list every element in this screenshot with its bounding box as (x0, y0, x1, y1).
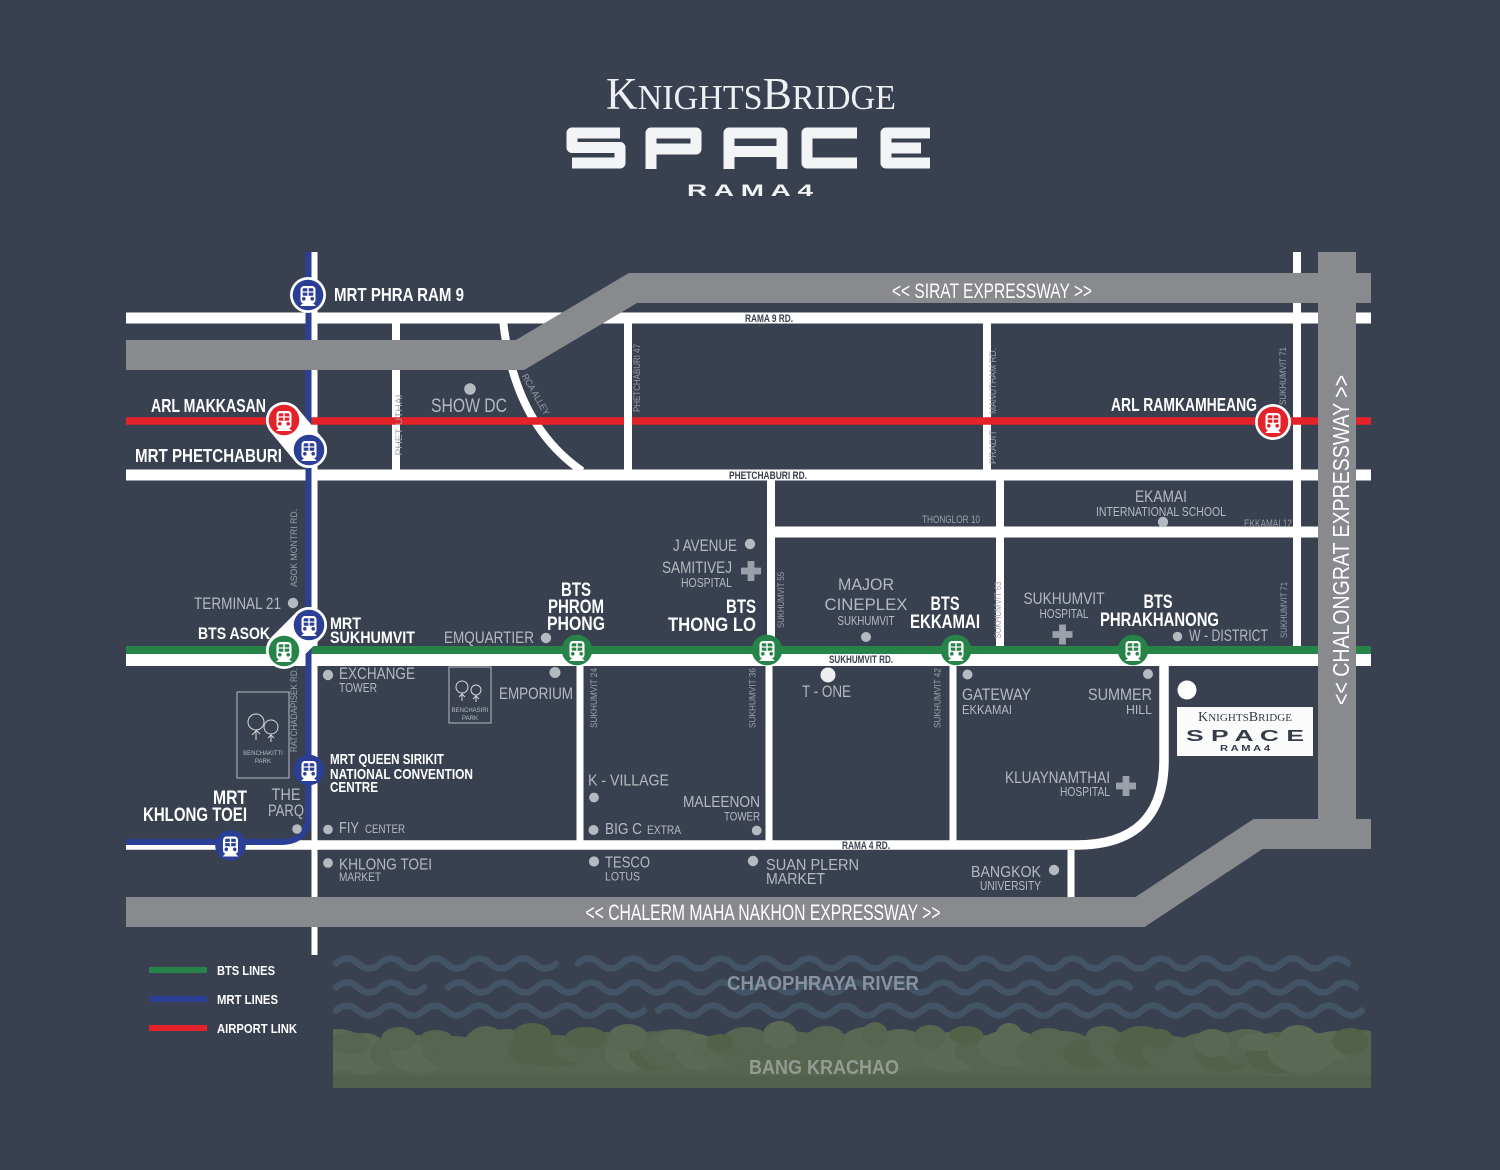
svg-text:BIG C: BIG C (605, 821, 642, 838)
svg-text:MAJOR: MAJOR (838, 575, 894, 594)
svg-text:PHETCHABURI RD.: PHETCHABURI RD. (729, 470, 807, 482)
svg-text:W - DISTRICT: W - DISTRICT (1189, 626, 1268, 645)
svg-text:ARL RAMKAMHEANG: ARL RAMKAMHEANG (1111, 395, 1257, 415)
svg-text:TOWER: TOWER (339, 680, 377, 695)
svg-text:<< CHALONGRAT EXPRESSWAY >>: << CHALONGRAT EXPRESSWAY >> (1328, 375, 1354, 705)
svg-text:CENTRE: CENTRE (330, 779, 378, 796)
svg-text:SUKHUMVIT 55: SUKHUMVIT 55 (776, 572, 787, 628)
svg-text:PHET UTHAI: PHET UTHAI (394, 395, 405, 456)
svg-text:MARKET: MARKET (339, 870, 382, 884)
svg-text:J AVENUE: J AVENUE (673, 536, 737, 555)
svg-text:PRADIT: PRADIT (988, 430, 999, 464)
svg-text:SUKHUMVIT 42: SUKHUMVIT 42 (933, 668, 944, 728)
svg-text:SUKHUMVIT 24: SUKHUMVIT 24 (589, 668, 600, 728)
svg-text:RAMA 4 RD.: RAMA 4 RD. (842, 840, 890, 852)
svg-text:MRT PHETCHABURI: MRT PHETCHABURI (135, 446, 282, 466)
svg-text:EXTRA: EXTRA (647, 823, 681, 837)
svg-text:R A M A 4: R A M A 4 (687, 181, 814, 200)
svg-text:T - ONE: T - ONE (802, 682, 851, 701)
svg-text:SUKHUMVIT 63: SUKHUMVIT 63 (993, 582, 1004, 639)
svg-text:KHLONG TOEI: KHLONG TOEI (143, 805, 247, 826)
svg-text:ARL MAKKASAN: ARL MAKKASAN (151, 396, 266, 416)
svg-text:EMQUARTIER: EMQUARTIER (444, 628, 534, 647)
svg-text:SUKHUMVIT: SUKHUMVIT (330, 628, 416, 647)
svg-text:LOTUS: LOTUS (605, 870, 640, 884)
svg-text:FIY: FIY (339, 820, 359, 837)
svg-text:TERMINAL 21: TERMINAL 21 (194, 594, 281, 613)
svg-text:INTERNATIONAL SCHOOL: INTERNATIONAL SCHOOL (1096, 504, 1226, 519)
svg-text:MRT PHRA RAM 9: MRT PHRA RAM 9 (334, 285, 464, 305)
svg-text:EMPORIUM: EMPORIUM (499, 684, 573, 703)
svg-text:SUKHUMVIT: SUKHUMVIT (838, 613, 895, 628)
svg-text:R A M A 4: R A M A 4 (1220, 744, 1271, 753)
svg-text:BENCHAKITTI: BENCHAKITTI (243, 751, 283, 757)
svg-text:PARQ: PARQ (268, 801, 304, 820)
svg-text:BTS LINES: BTS LINES (217, 963, 275, 978)
svg-text:CENTER: CENTER (365, 822, 405, 836)
svg-text:BTS ASOK: BTS ASOK (198, 624, 271, 643)
svg-text:MANUTHAM RD.: MANUTHAM RD. (988, 348, 999, 414)
svg-text:K - VILLAGE: K - VILLAGE (588, 773, 669, 790)
svg-text:<< CHALERM MAHA NAKHON EXPRESS: << CHALERM MAHA NAKHON EXPRESSWAY >> (586, 900, 941, 925)
svg-text:BANG KRACHAO: BANG KRACHAO (749, 1057, 899, 1079)
svg-text:<< SIRAT EXPRESSWAY >>: << SIRAT EXPRESSWAY >> (892, 280, 1092, 303)
svg-text:CINEPLEX: CINEPLEX (825, 595, 908, 614)
svg-text:ASOK MONTRI RD.: ASOK MONTRI RD. (289, 509, 300, 587)
svg-text:MRT LINES: MRT LINES (217, 992, 278, 1007)
svg-text:THONGLOR 10: THONGLOR 10 (922, 514, 980, 526)
svg-text:SUKHUMVIT 71: SUKHUMVIT 71 (1278, 347, 1289, 405)
svg-text:HILL: HILL (1126, 702, 1152, 717)
svg-text:CHAOPHRAYA RIVER: CHAOPHRAYA RIVER (727, 973, 920, 995)
svg-text:TOWER: TOWER (724, 810, 760, 824)
svg-text:AIRPORT LINK: AIRPORT LINK (217, 1021, 298, 1036)
svg-text:EKKAMAI 12: EKKAMAI 12 (1244, 518, 1292, 530)
svg-text:PARK: PARK (255, 759, 271, 765)
svg-text:KNIGHTSBRIDGE: KNIGHTSBRIDGE (1198, 710, 1292, 725)
svg-text:PHONG: PHONG (547, 614, 605, 635)
svg-text:MALEENON: MALEENON (683, 794, 760, 811)
svg-text:UNIVERSITY: UNIVERSITY (980, 878, 1041, 893)
svg-text:EKKAMAI: EKKAMAI (910, 612, 980, 633)
svg-text:HOSPITAL: HOSPITAL (1060, 784, 1110, 799)
svg-text:RAMA 9 RD.: RAMA 9 RD. (745, 313, 793, 325)
svg-text:SUKHUMVIT RD.: SUKHUMVIT RD. (829, 654, 893, 666)
svg-text:THONG LO: THONG LO (668, 615, 756, 636)
svg-text:PARK: PARK (462, 716, 478, 722)
svg-text:SUKHUMVIT 71: SUKHUMVIT 71 (1279, 582, 1290, 638)
svg-text:SHOW DC: SHOW DC (431, 396, 507, 417)
svg-text:BENCHASIRI: BENCHASIRI (452, 708, 489, 714)
svg-text:PHETCHABURI 47: PHETCHABURI 47 (632, 344, 643, 412)
svg-text:S P A C E: S P A C E (1186, 728, 1305, 745)
svg-text:SUKHUMVIT 36: SUKHUMVIT 36 (748, 668, 759, 728)
svg-text:RATCHADAPISEK RD.: RATCHADAPISEK RD. (289, 668, 300, 752)
svg-text:EKKAMAI: EKKAMAI (962, 702, 1012, 717)
svg-text:HOSPITAL: HOSPITAL (1040, 606, 1089, 621)
svg-text:HOSPITAL: HOSPITAL (681, 575, 732, 590)
svg-text:MARKET: MARKET (766, 871, 825, 888)
